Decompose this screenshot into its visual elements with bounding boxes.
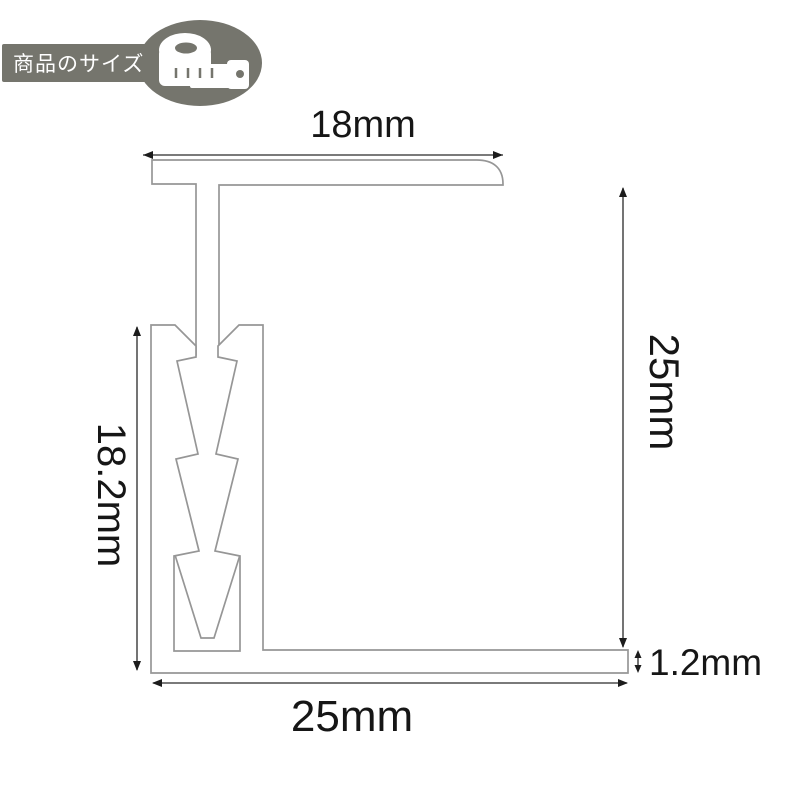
- arrow-up-icon: [619, 187, 627, 197]
- dim-bottom-width: 25mm: [152, 679, 628, 741]
- dim-label-left-height: 18.2mm: [89, 423, 133, 568]
- arrow-right-icon: [618, 679, 628, 687]
- arrow-down-icon: [619, 638, 627, 648]
- arrow-up-icon: [133, 326, 141, 336]
- size-diagram-canvas: 商品のサイズ 18mm 25mm: [0, 0, 800, 800]
- arrow-down-icon: [133, 661, 141, 671]
- badge-label: 商品のサイズ: [13, 53, 144, 76]
- profile-cap-and-stem-outline: [152, 160, 503, 638]
- product-size-figure: 商品のサイズ 18mm 25mm: [0, 0, 800, 800]
- size-badge: 商品のサイズ: [2, 20, 262, 106]
- arrow-down-icon: [635, 665, 642, 673]
- arrow-up-icon: [635, 650, 642, 658]
- dim-label-right-height: 25mm: [641, 334, 688, 451]
- dim-label-bottom-width: 25mm: [291, 692, 413, 741]
- dim-right-height: 25mm: [619, 187, 688, 648]
- dim-left-height: 18.2mm: [89, 326, 141, 671]
- arrow-right-icon: [493, 151, 503, 159]
- dim-base-thickness: 1.2mm: [635, 642, 763, 683]
- dim-top-width: 18mm: [143, 104, 503, 159]
- arrow-left-icon: [143, 151, 153, 159]
- dim-label-base-thickness: 1.2mm: [649, 642, 762, 683]
- arrow-left-icon: [152, 679, 162, 687]
- dim-label-top-width: 18mm: [310, 104, 416, 146]
